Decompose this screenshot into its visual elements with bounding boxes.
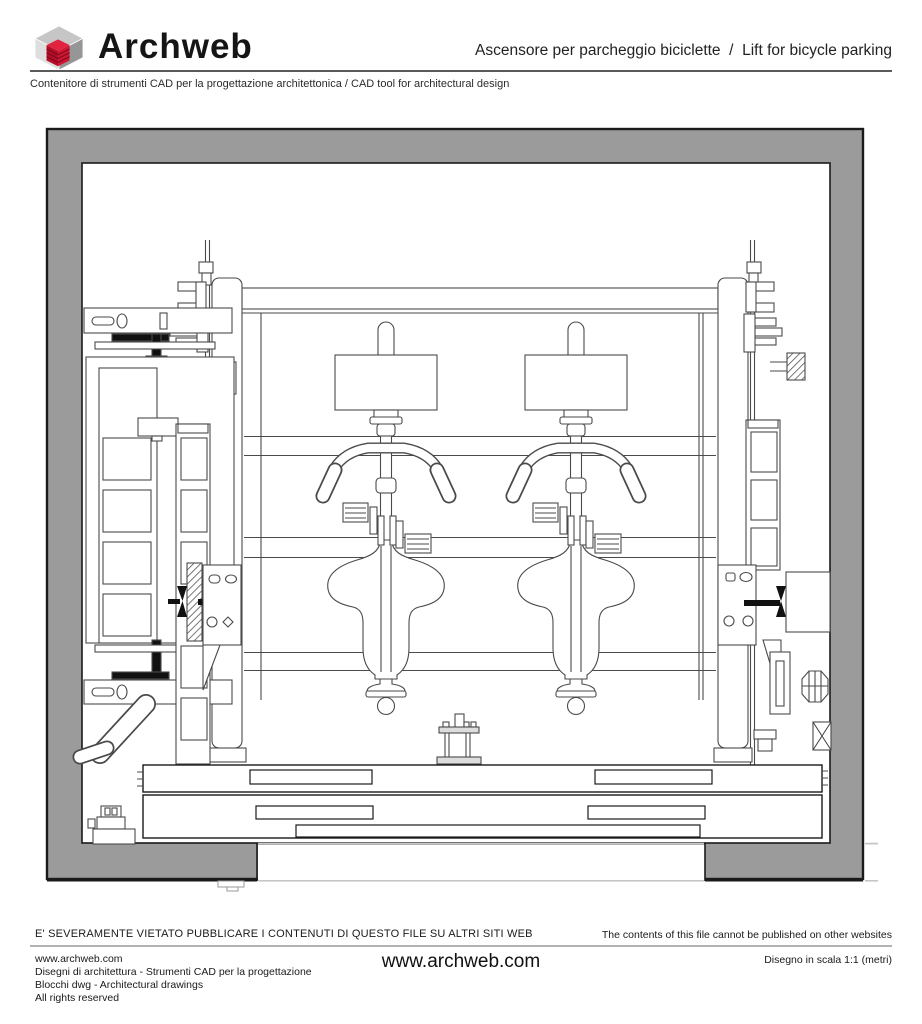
scale-note: Disegno in scala 1:1 (metri)	[764, 954, 892, 966]
cad-drawing-bicycle-lift	[44, 126, 880, 908]
page-title: Ascensore per parcheggio biciclette / Li…	[475, 42, 892, 60]
footer-info-line: All rights reserved	[35, 992, 312, 1005]
footer-divider	[30, 945, 892, 947]
archweb-cube-logo-icon[interactable]	[30, 25, 88, 71]
footer-info-line: Blocchi dwg - Architectural drawings	[35, 979, 312, 992]
header-subtitle: Contenitore di strumenti CAD per la prog…	[30, 78, 509, 90]
lift-platform	[137, 765, 828, 838]
left-door-panel	[80, 308, 234, 757]
brand-title[interactable]: Archweb	[98, 27, 253, 67]
warning-text-en: The contents of this file cannot be publ…	[602, 929, 892, 941]
header-divider	[30, 70, 892, 72]
warning-text-it: E' SEVERAMENTE VIETATO PUBBLICARE I CONT…	[35, 928, 533, 940]
